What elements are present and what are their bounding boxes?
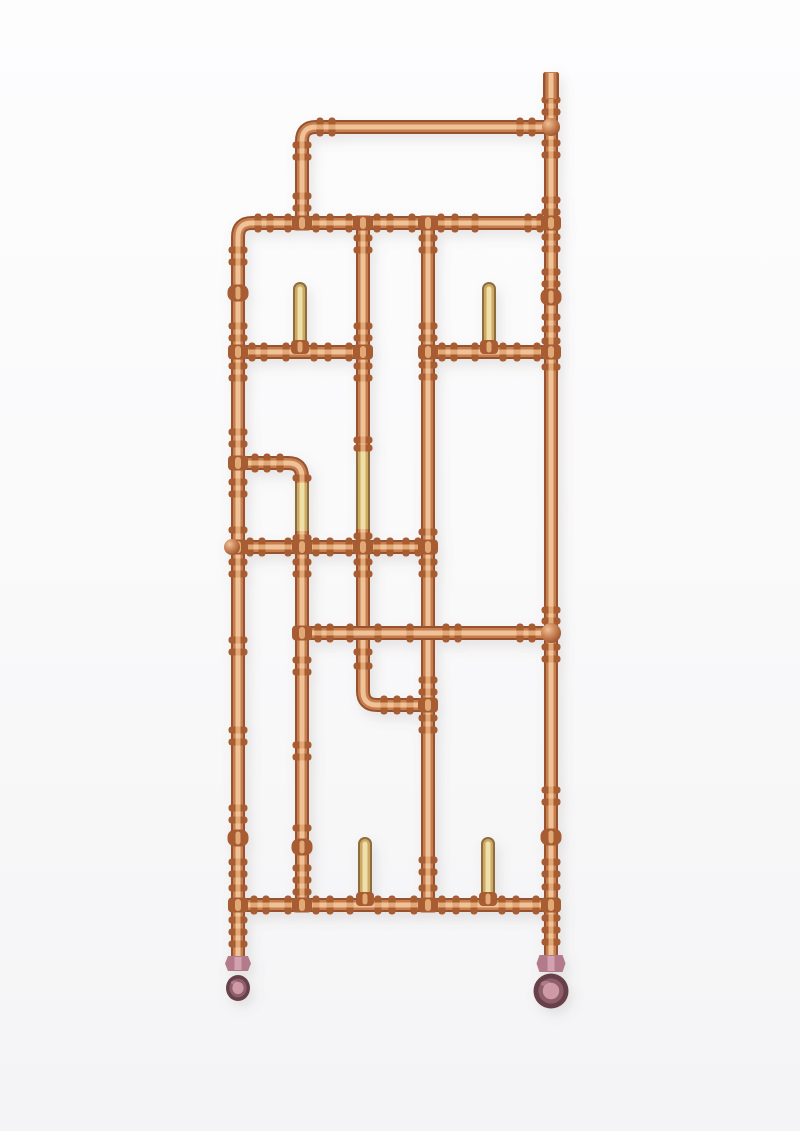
- pipe-coupling-bead: [453, 896, 460, 915]
- pipe-coupling-bead: [419, 857, 438, 864]
- pipe-coupling-bead: [455, 624, 462, 643]
- right-valve: [534, 955, 569, 1009]
- pipe-coupling-bead: [354, 559, 373, 566]
- pipe-coupling-bead: [542, 326, 561, 333]
- pipe-coupling-bead: [327, 896, 334, 915]
- pipe-coupling-bead: [354, 533, 373, 540]
- pipe-coupling-bead: [229, 571, 248, 578]
- pipe-coupling-bead: [517, 624, 524, 643]
- peg-socket: [291, 340, 309, 354]
- pipe-coupling-bead: [293, 193, 312, 200]
- wall-mount-bulge: [228, 285, 249, 302]
- pipe-coupling-bead: [439, 896, 446, 915]
- pipe-coupling-bead: [229, 739, 248, 746]
- pipe-coupling-bead: [311, 343, 318, 362]
- pipe-coupling-bead: [542, 314, 561, 321]
- valve-wheel: [534, 974, 569, 1009]
- pipe-coupling-bead: [389, 896, 396, 915]
- pipe-coupling-bead: [259, 538, 266, 557]
- pipe-coupling-bead: [542, 140, 561, 147]
- pipe-coupling-bead: [354, 663, 373, 670]
- t-junction-socket: [418, 216, 438, 231]
- pipe-coupling-bead: [451, 343, 458, 362]
- wall-mount-bulge: [292, 839, 313, 856]
- pipe-coupling-bead: [229, 323, 248, 330]
- pipe-coupling-bead: [472, 214, 479, 233]
- pipe-coupling-bead: [261, 343, 268, 362]
- pipe-coupling-bead: [443, 624, 450, 643]
- pipe-coupling-bead: [285, 896, 292, 915]
- pipe-coupling-bead: [313, 538, 320, 557]
- wall-mount-bulge: [541, 289, 562, 306]
- backdrop: [0, 0, 800, 1131]
- pipe-coupling-bead: [255, 214, 262, 233]
- pipe-coupling-bead: [354, 335, 373, 342]
- pipe-coupling-bead: [264, 454, 271, 473]
- pipe-coupling-bead: [407, 624, 414, 643]
- pipe-coupling-bead: [293, 657, 312, 664]
- pipe-coupling-bead: [293, 154, 312, 161]
- t-junction-socket: [228, 456, 248, 471]
- pipe-coupling-bead: [251, 896, 258, 915]
- pipe-coupling-bead: [354, 247, 373, 254]
- pipe-coupling-bead: [354, 363, 373, 370]
- valve-wheel: [226, 975, 250, 1001]
- t-junction-socket: [418, 898, 438, 913]
- t-junction-socket: [353, 540, 373, 555]
- pipe-coupling-bead: [267, 214, 274, 233]
- t-junction-socket: [292, 540, 312, 555]
- pipe-coupling-bead: [419, 689, 438, 696]
- pipe-coupling-bead: [229, 917, 248, 924]
- pipe-sculpture-canvas: [0, 0, 800, 1131]
- pipe-coupling-bead: [229, 363, 248, 370]
- pipe-coupling-bead: [542, 197, 561, 204]
- pipe-coupling-bead: [394, 696, 401, 715]
- pipe-coupling-bead: [419, 869, 438, 876]
- pipe-coupling-bead: [354, 437, 373, 444]
- pipe-coupling-bead: [285, 214, 292, 233]
- pipe-coupling-bead: [229, 335, 248, 342]
- pipe-coupling-bead: [514, 343, 521, 362]
- pipe-coupling-bead: [419, 677, 438, 684]
- pipe-coupling-bead: [354, 375, 373, 382]
- pipe-coupling-bead: [375, 896, 382, 915]
- pipe-coupling-bead: [419, 247, 438, 254]
- pipe-coupling-bead: [387, 538, 394, 557]
- pipe-coupling-bead: [249, 343, 256, 362]
- pipe-coupling-bead: [517, 118, 524, 137]
- pipe-coupling-bead: [346, 214, 353, 233]
- pipe-coupling-bead: [542, 281, 561, 288]
- pipe-coupling-bead: [293, 669, 312, 676]
- pipe-coupling-bead: [419, 571, 438, 578]
- pipe-coupling-bead: [387, 214, 394, 233]
- pipe-coupling-bead: [347, 624, 354, 643]
- valve-nut: [225, 956, 251, 971]
- pipe-coupling-bead: [533, 896, 540, 915]
- peg-socket: [479, 892, 497, 906]
- pipe-coupling-bead: [438, 214, 445, 233]
- pipe-coupling-bead: [542, 884, 561, 891]
- pipe-coupling-bead: [542, 234, 561, 241]
- pipe-coupling-bead: [542, 915, 561, 922]
- pipe-coupling-bead: [542, 152, 561, 159]
- pipe-coupling-bead: [229, 559, 248, 566]
- pipe-coupling-bead: [229, 491, 248, 498]
- pipe-coupling-bead: [542, 246, 561, 253]
- t-junction-socket: [228, 898, 248, 913]
- pipe-coupling-bead: [419, 335, 438, 342]
- valve-nut: [537, 955, 566, 972]
- pipe-coupling-bead: [313, 896, 320, 915]
- pipe-coupling-bead: [229, 247, 248, 254]
- t-junction-socket: [292, 626, 312, 641]
- peg-socket: [480, 340, 498, 354]
- copper-pipework-sculpture-photo: [0, 0, 800, 1131]
- pipe-coupling-bead: [317, 118, 324, 137]
- pipe-coupling-bead: [229, 929, 248, 936]
- t-junction-socket: [228, 345, 248, 360]
- pipe-end-cap: [543, 72, 559, 99]
- pipe-coupling-bead: [403, 538, 410, 557]
- pipe-coupling-bead: [409, 214, 416, 233]
- pipe-coupling-bead: [329, 118, 336, 137]
- pipe-coupling-bead: [285, 538, 292, 557]
- pipe-coupling-bead: [542, 656, 561, 663]
- pipe-coupling-bead: [407, 696, 414, 715]
- pipe-coupling-bead: [277, 454, 284, 473]
- pipe-coupling-bead: [293, 754, 312, 761]
- pipe-coupling-bead: [293, 825, 312, 832]
- peg-socket: [356, 892, 374, 906]
- pipe-coupling-bead: [229, 637, 248, 644]
- pipe-coupling-bead: [411, 896, 418, 915]
- pipe-coupling-bead: [542, 927, 561, 934]
- pipe-coupling-bead: [381, 696, 388, 715]
- pipe-coupling-bead: [534, 343, 541, 362]
- pipe-coupling-bead: [229, 859, 248, 866]
- pipe-coupling-bead: [542, 364, 561, 371]
- pipe-coupling-bead: [542, 939, 561, 946]
- pipe-coupling-bead: [542, 269, 561, 276]
- pipe-coupling-bead: [419, 727, 438, 734]
- pipe-coupling-bead: [293, 742, 312, 749]
- pipe-coupling-bead: [229, 727, 248, 734]
- pipe-coupling-bead: [419, 374, 438, 381]
- pipe-coupling-bead: [542, 338, 561, 345]
- pipe-coupling-bead: [229, 259, 248, 266]
- t-junction-socket: [292, 898, 312, 913]
- pipe-coupling-bead: [354, 235, 373, 242]
- pipe-coupling-bead: [419, 529, 438, 536]
- pipe-coupling-bead: [327, 624, 334, 643]
- pipe-coupling-bead: [229, 375, 248, 382]
- pipe-coupling-bead: [229, 941, 248, 948]
- pipe-coupling-bead: [293, 571, 312, 578]
- pipe-coupling-bead: [542, 644, 561, 651]
- pipe-coupling-bead: [499, 896, 506, 915]
- pipe-coupling-bead: [283, 343, 290, 362]
- pipe-coupling-bead: [229, 871, 248, 878]
- pipe-coupling-bead: [293, 475, 312, 482]
- pipe-coupling-bead: [315, 624, 322, 643]
- wall-mount-bulge: [541, 829, 562, 846]
- ball-fitting: [541, 623, 561, 643]
- pipe-coupling-bead: [513, 896, 520, 915]
- pipe-coupling-bead: [374, 214, 381, 233]
- t-junction-socket: [418, 345, 438, 360]
- t-junction-socket: [541, 216, 561, 231]
- pipe-coupling-bead: [419, 362, 438, 369]
- pipe-coupling-bead: [293, 205, 312, 212]
- pipe-coupling-bead: [354, 323, 373, 330]
- pipe-coupling-bead: [542, 607, 561, 614]
- pipe-coupling-bead: [293, 559, 312, 566]
- pipe-coupling-bead: [263, 896, 270, 915]
- ball-fitting: [224, 539, 240, 555]
- pipe-coupling-bead: [542, 859, 561, 866]
- t-junction-socket: [292, 216, 312, 231]
- pipe-coupling-bead: [542, 871, 561, 878]
- pipe-coupling-bead: [229, 479, 248, 486]
- pipe-coupling-bead: [293, 142, 312, 149]
- pipe-coupling-bead: [229, 885, 248, 892]
- pipe-coupling-bead: [346, 343, 353, 362]
- t-junction-socket: [353, 216, 373, 231]
- pipe-coupling-bead: [346, 538, 353, 557]
- wall-mount-bulge: [228, 830, 249, 847]
- pipe-coupling-bead: [452, 214, 459, 233]
- pipe-coupling-bead: [229, 817, 248, 824]
- t-junction-socket: [353, 345, 373, 360]
- pipe-coupling-bead: [347, 896, 354, 915]
- pipe-coupling-bead: [252, 454, 259, 473]
- pipe-coupling-bead: [229, 441, 248, 448]
- pipe-coupling-bead: [542, 787, 561, 794]
- pipe-coupling-bead: [374, 538, 381, 557]
- pipe-coupling-bead: [542, 209, 561, 216]
- pipe-coupling-bead: [313, 214, 320, 233]
- pipe-coupling-bead: [293, 889, 312, 896]
- pipe-coupling-bead: [419, 885, 438, 892]
- ball-fitting: [542, 118, 560, 136]
- pipe-coupling-bead: [439, 343, 446, 362]
- pipe-coupling-bead: [471, 896, 478, 915]
- t-junction-socket: [541, 345, 561, 360]
- t-junction-socket: [541, 898, 561, 913]
- pipe-coupling-bead: [419, 715, 438, 722]
- pipe-coupling-bead: [419, 323, 438, 330]
- pipe-coupling-bead: [293, 865, 312, 872]
- pipe-coupling-bead: [375, 624, 382, 643]
- pipe-coupling-bead: [542, 109, 561, 116]
- pipe-coupling-bead: [229, 527, 248, 534]
- t-junction-socket: [418, 540, 438, 555]
- pipe-coupling-bead: [419, 559, 438, 566]
- pipe-coupling-bead: [419, 235, 438, 242]
- pipe-coupling-bead: [327, 214, 334, 233]
- pipe-coupling-bead: [472, 343, 479, 362]
- pipe-coupling-bead: [229, 805, 248, 812]
- pipe-coupling-bead: [525, 214, 532, 233]
- pipe-coupling-bead: [327, 538, 334, 557]
- pipe-coupling-bead: [229, 649, 248, 656]
- pipe-coupling-bead: [325, 343, 332, 362]
- pipe-coupling-bead: [500, 343, 507, 362]
- pipe-coupling-bead: [229, 429, 248, 436]
- pipe-coupling-bead: [529, 624, 536, 643]
- t-junction-socket: [418, 698, 438, 713]
- pipe-coupling-bead: [354, 571, 373, 578]
- pipe-coupling-bead: [354, 649, 373, 656]
- pipe-coupling-bead: [529, 118, 536, 137]
- pipe-coupling-bead: [293, 877, 312, 884]
- pipe-coupling-bead: [542, 799, 561, 806]
- pipe-coupling-bead: [354, 445, 373, 452]
